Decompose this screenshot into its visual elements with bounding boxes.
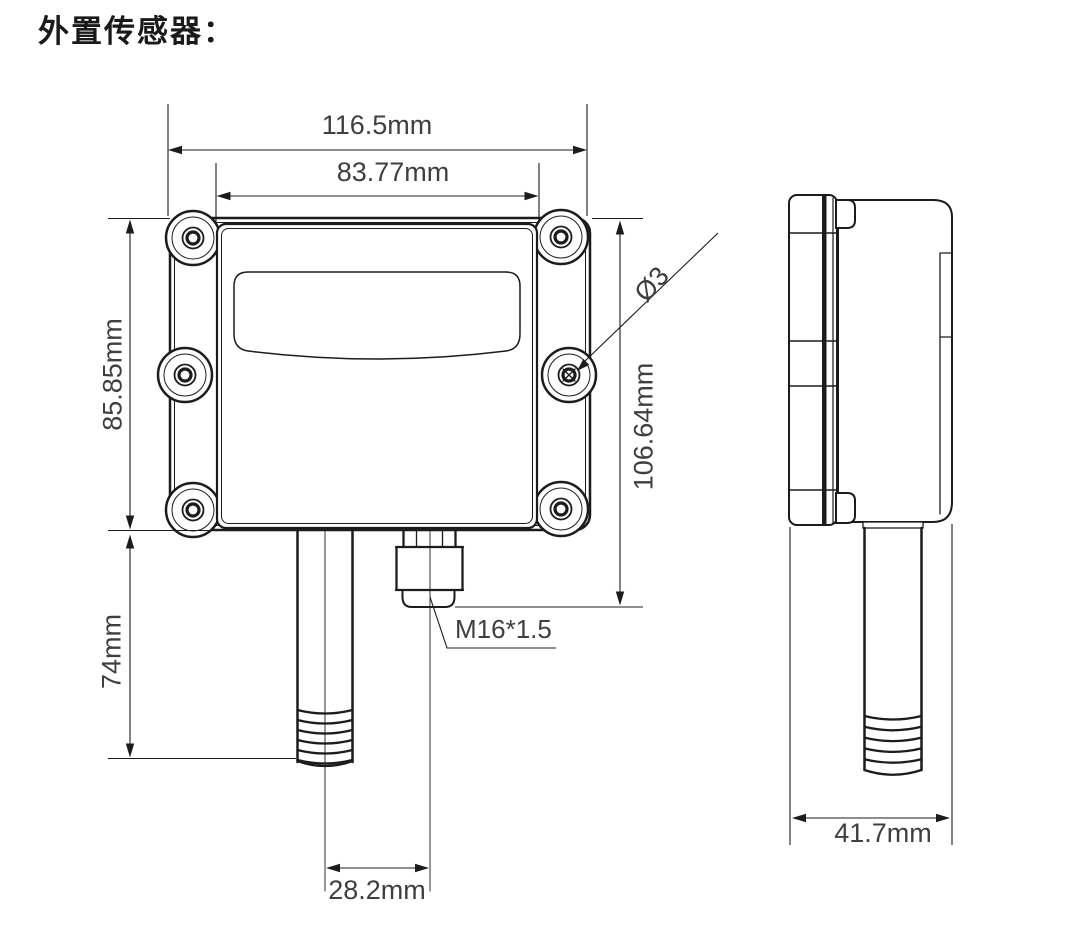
enclosure-body xyxy=(217,224,537,528)
side-lug-bottom xyxy=(836,493,855,523)
dim-gland-thread: M16*1.5 xyxy=(455,616,565,643)
dim-overall-width: 116.5mm xyxy=(277,112,477,139)
dim-overall-height: 106.64mm xyxy=(631,337,658,517)
page-title: 外置传感器： xyxy=(38,14,236,50)
centerlines xyxy=(325,530,430,891)
sensor-dimension-drawing: 外置传感器： 116.5mm 83.77mm 85.85mm 74mm 106.… xyxy=(0,0,1080,928)
cable-gland xyxy=(396,530,463,607)
side-seal-line xyxy=(822,196,827,524)
side-flange xyxy=(789,195,837,525)
side-view-outline xyxy=(789,195,952,775)
dim-body-height: 85.85mm xyxy=(100,295,127,455)
dim-inner-width: 83.77mm xyxy=(293,159,493,186)
front-view-outline xyxy=(158,210,596,891)
dim-probe-length: 74mm xyxy=(99,592,126,712)
side-probe xyxy=(865,528,922,775)
dim-depth: 41.7mm xyxy=(803,820,963,847)
side-lug-top xyxy=(836,200,855,228)
dim-probe-offset: 28.2mm xyxy=(297,877,457,904)
side-body xyxy=(838,200,952,522)
technical-drawing xyxy=(0,0,1080,928)
